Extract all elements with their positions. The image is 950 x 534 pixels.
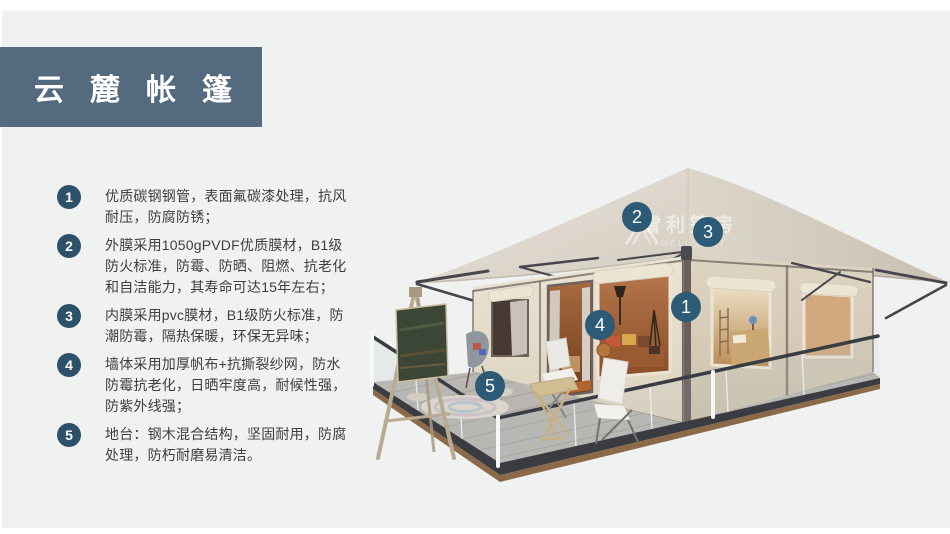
easel-canvas: [396, 304, 448, 382]
tent-illustration: 雪利篷房 YUELI TENT 1 2 3 4 5: [370, 160, 950, 500]
feature-text: 地台：钢木混合结构，坚固耐用，防腐处理，防朽耐磨易清洁。: [105, 424, 349, 466]
feature-text: 优质碳钢钢管，表面氟碳漆处理，抗风耐压，防腐防锈；: [105, 186, 349, 228]
feature-list: 1 优质碳钢钢管，表面氟碳漆处理，抗风耐压，防腐防锈； 2 外膜采用1050gP…: [57, 186, 367, 473]
tent-marker-3: 3: [693, 217, 723, 247]
feature-number-badge: 4: [57, 353, 81, 377]
feature-item: 4 墙体采用加厚帆布+抗撕裂纱网，防水防霉抗老化，日晒牢度高，耐候性强，防紫外线…: [57, 354, 367, 417]
feature-item: 2 外膜采用1050gPVDF优质膜材，B1级防火标准，防霉、防晒、阻燃、抗老化…: [57, 235, 367, 298]
title-banner: 云麓帐篷: [0, 47, 262, 127]
feature-item: 1 优质碳钢钢管，表面氟碳漆处理，抗风耐压，防腐防锈；: [57, 186, 367, 228]
window-side-interior: [706, 276, 777, 368]
tent-marker-1: 1: [671, 292, 701, 322]
feature-number-badge: 2: [57, 234, 81, 258]
tent-render: [370, 160, 950, 500]
feature-text: 墙体采用加厚帆布+抗撕裂纱网，防水防霉抗老化，日晒牢度高，耐候性强，防紫外线强；: [105, 354, 349, 417]
feature-text: 外膜采用1050gPVDF优质膜材，B1级防火标准，防霉、防晒、阻燃、抗老化和自…: [105, 235, 349, 298]
tent-marker-2: 2: [622, 202, 652, 232]
feature-number-badge: 3: [57, 304, 81, 328]
floor-cushion: [407, 393, 429, 401]
feature-item: 3 内膜采用pvc膜材，B1级防火标准，防潮防霉，隔热保暖，环保无异味；: [57, 305, 367, 347]
feature-item: 5 地台：钢木混合结构，坚固耐用，防腐处理，防朽耐磨易清洁。: [57, 424, 367, 466]
window-small: [488, 285, 535, 356]
slide-page: 云麓帐篷 1 优质碳钢钢管，表面氟碳漆处理，抗风耐压，防腐防锈； 2 外膜采用1…: [0, 0, 950, 534]
page-title: 云麓帐篷: [0, 65, 258, 109]
tent-marker-5: 5: [475, 371, 505, 401]
feature-number-badge: 5: [57, 423, 81, 447]
tent-marker-4: 4: [585, 310, 615, 340]
feature-number-badge: 1: [57, 185, 81, 209]
feature-text: 内膜采用pvc膜材，B1级防火标准，防潮防霉，隔热保暖，环保无异味；: [105, 305, 349, 347]
